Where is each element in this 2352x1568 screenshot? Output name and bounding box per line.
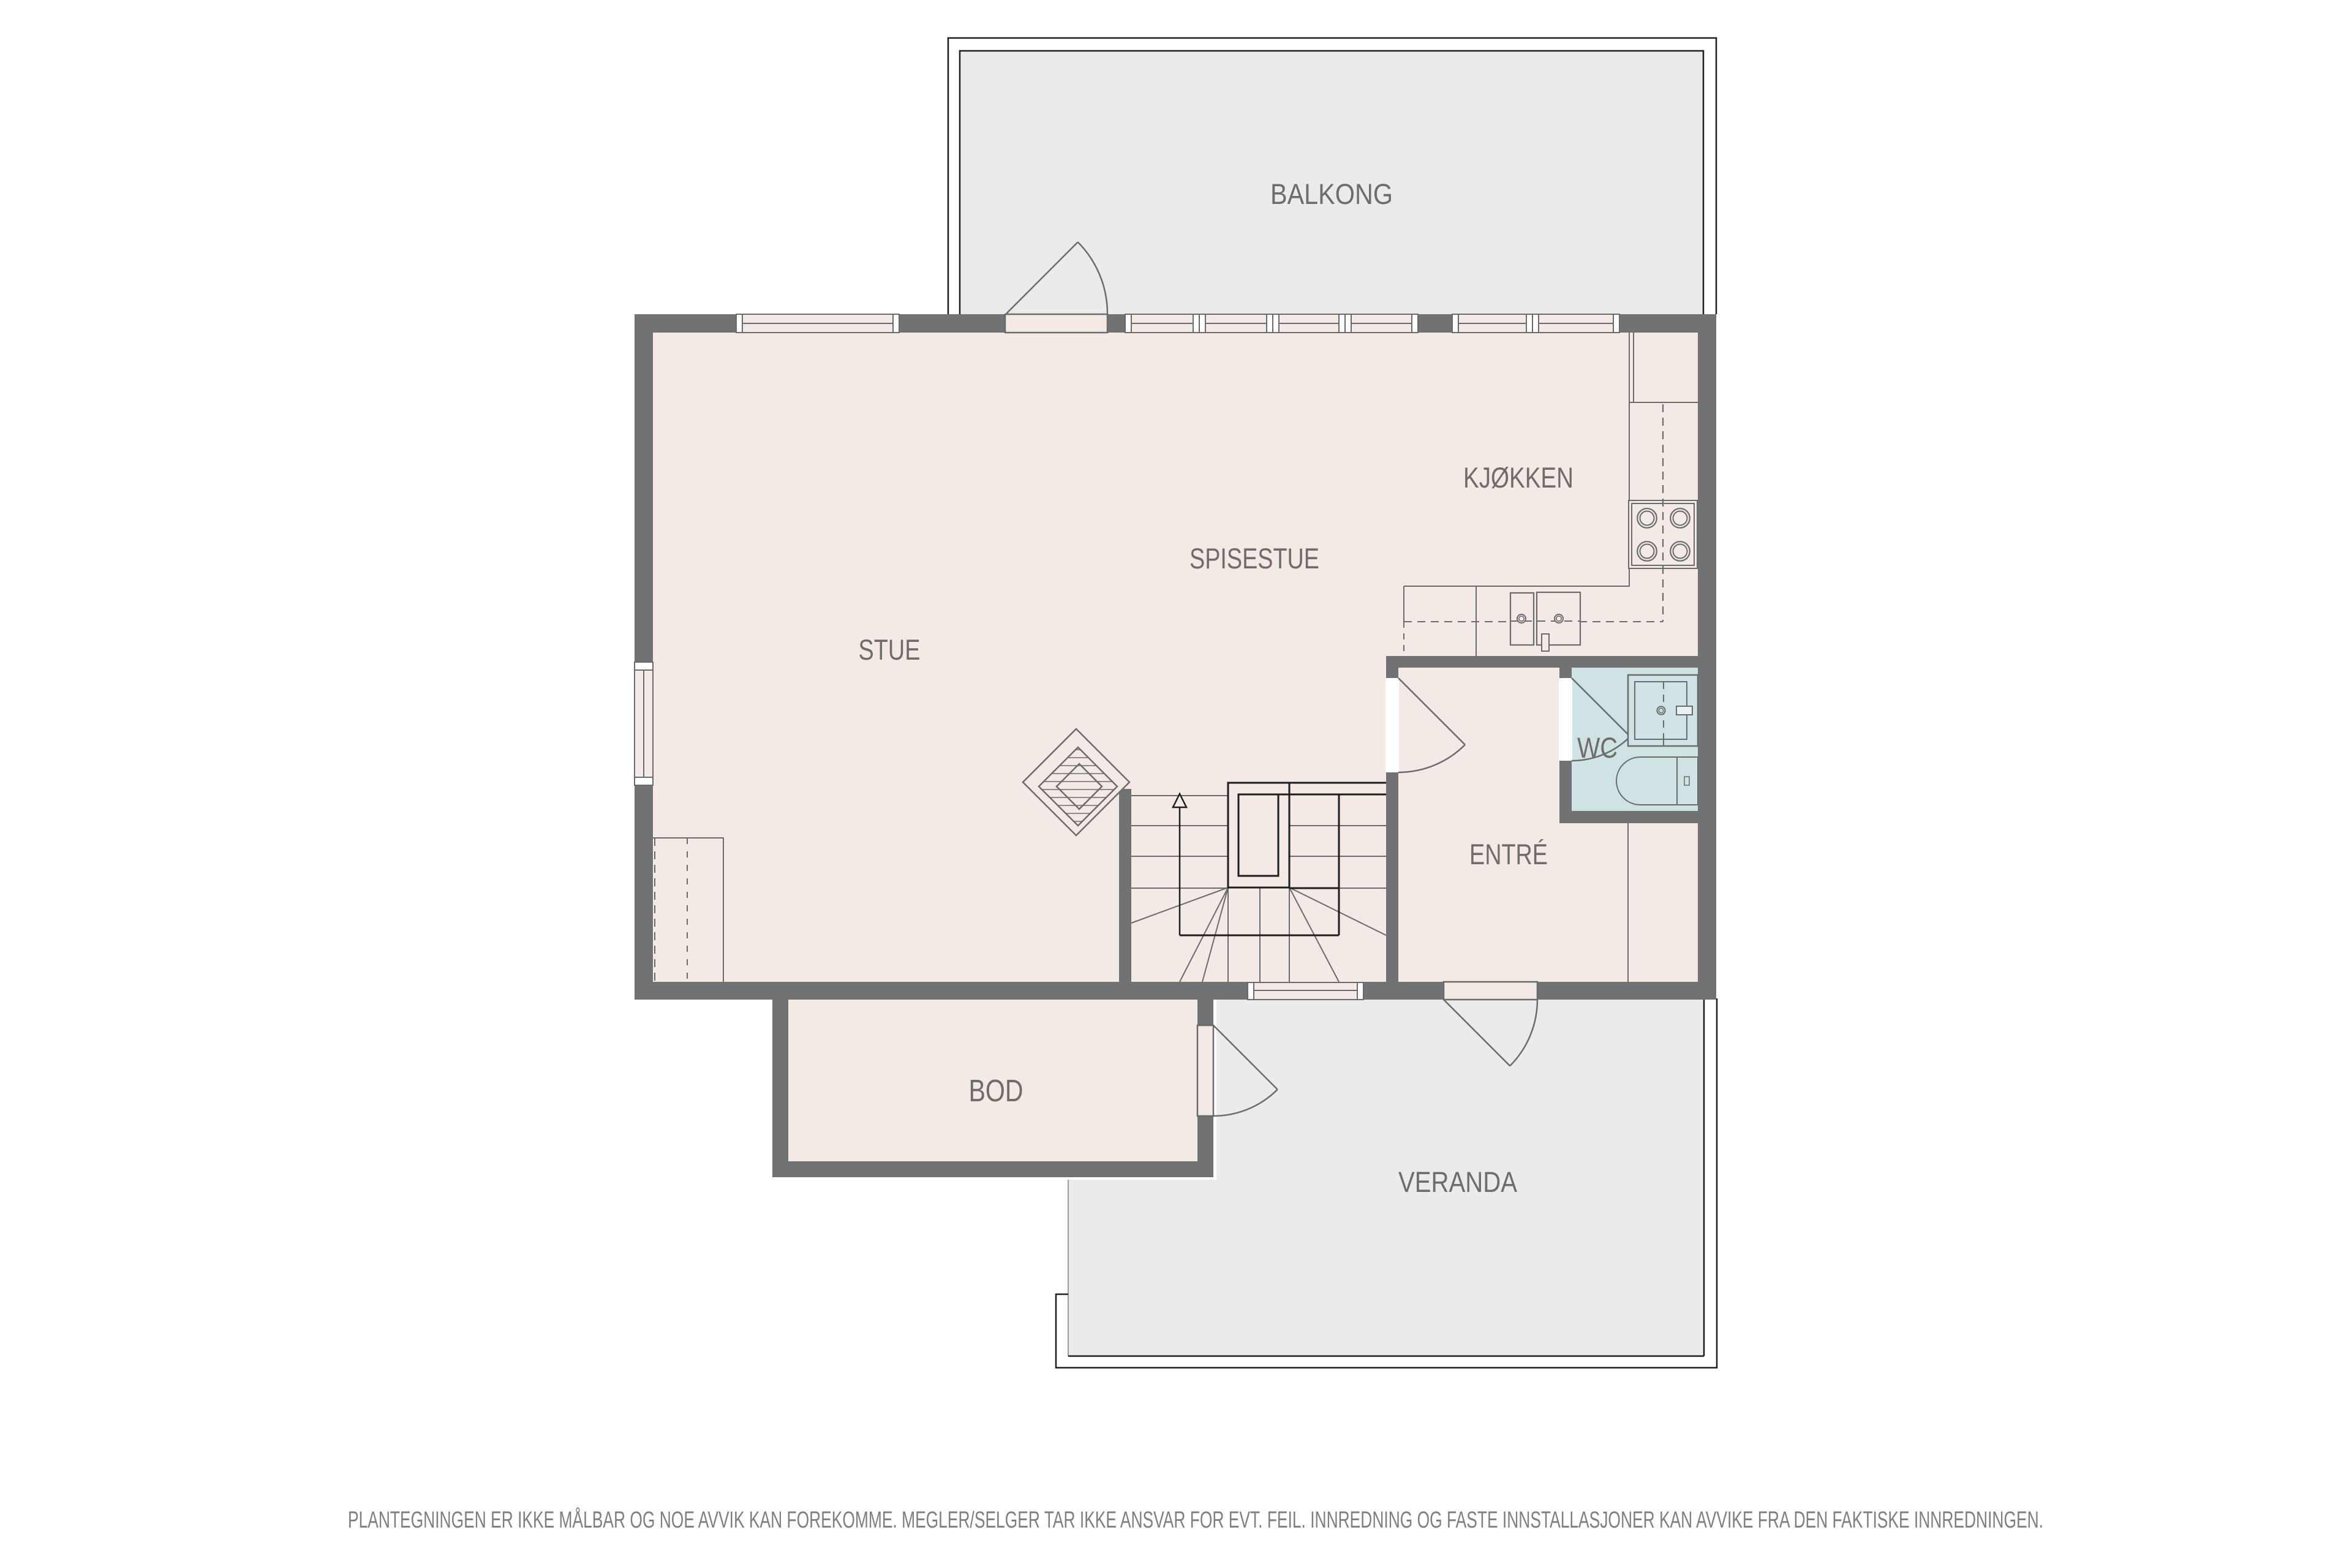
svg-text:ENTRÉ: ENTRÉ xyxy=(1469,838,1548,870)
svg-text:WC: WC xyxy=(1577,731,1618,764)
svg-text:SPISESTUE: SPISESTUE xyxy=(1189,542,1319,575)
svg-text:STUE: STUE xyxy=(859,633,921,666)
svg-text:VERANDA: VERANDA xyxy=(1398,1166,1518,1198)
svg-text:BALKONG: BALKONG xyxy=(1270,178,1393,210)
svg-text:BOD: BOD xyxy=(969,1073,1023,1108)
svg-text:PLANTEGNINGEN ER IKKE MÅLBAR O: PLANTEGNINGEN ER IKKE MÅLBAR OG NOE AVVI… xyxy=(348,1506,2043,1533)
svg-text:KJØKKEN: KJØKKEN xyxy=(1463,461,1574,494)
